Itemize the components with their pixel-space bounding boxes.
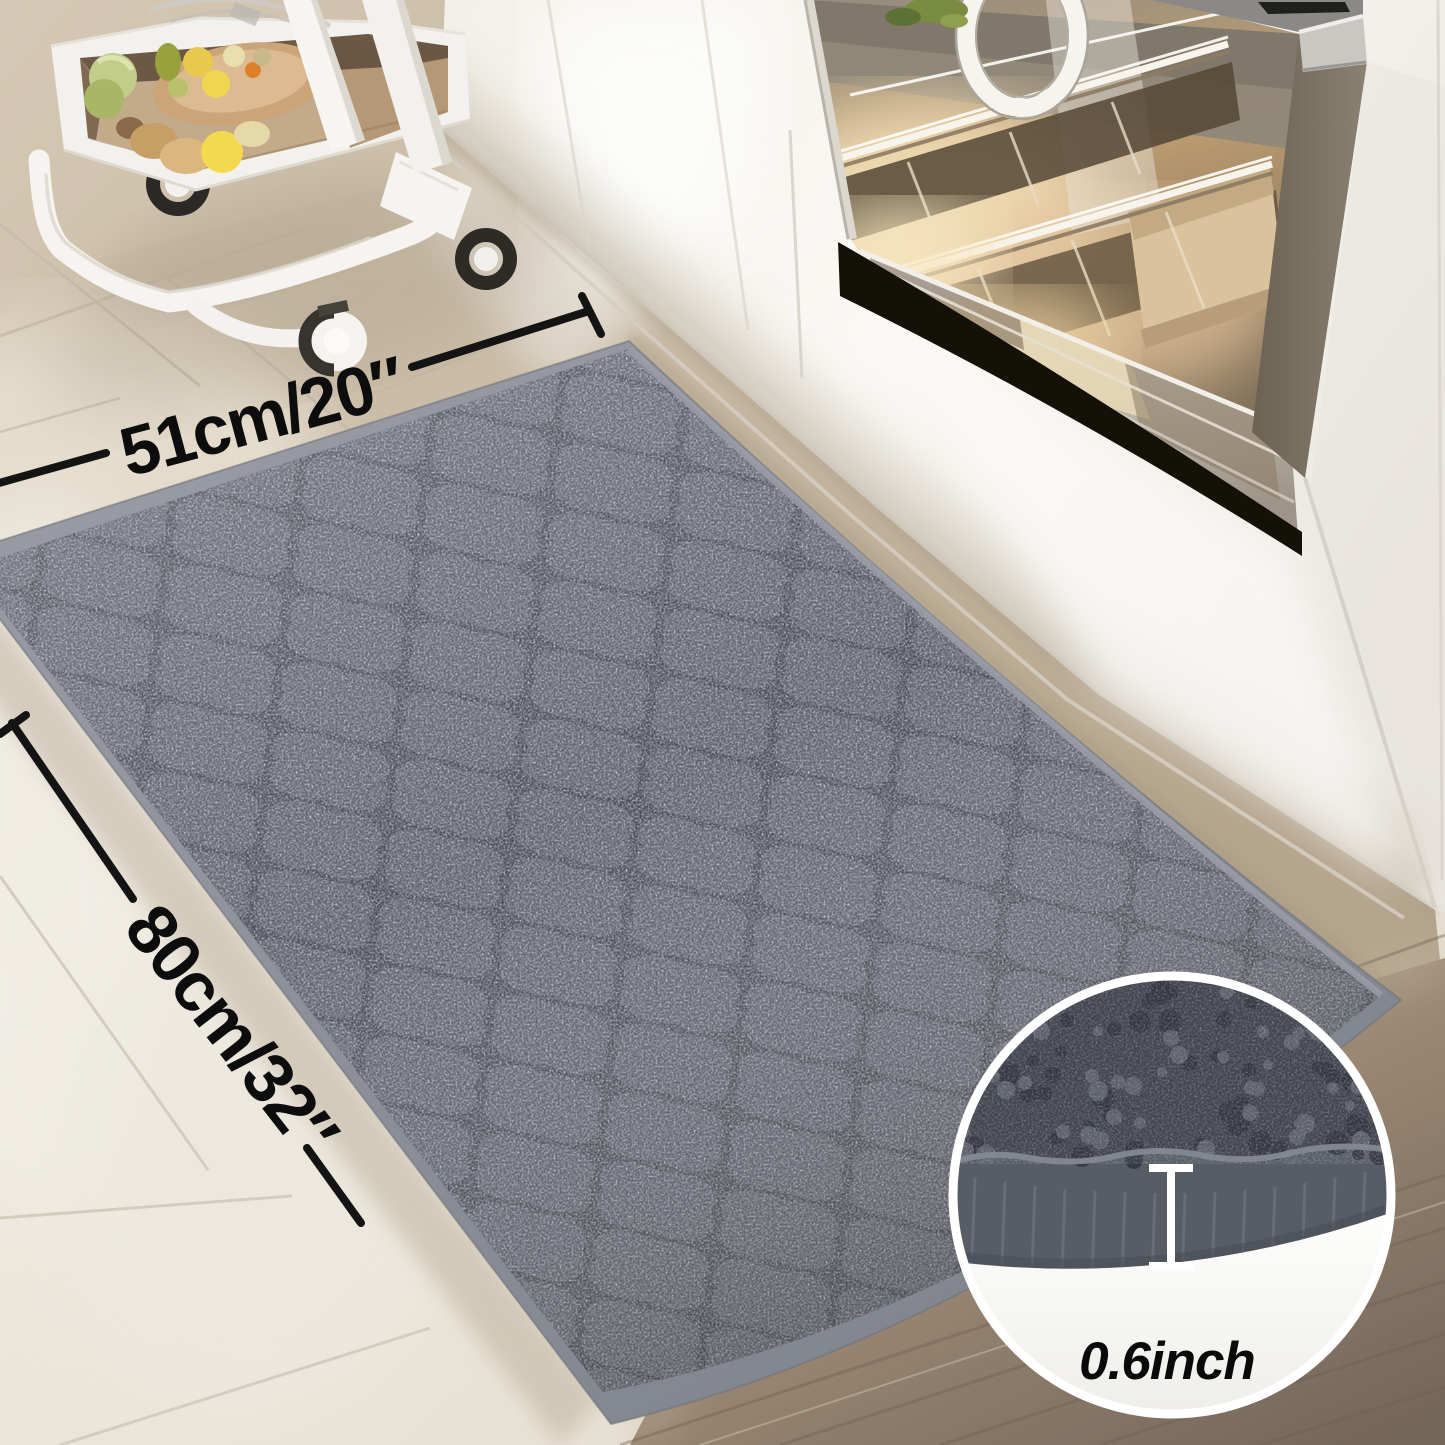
svg-text:0.6inch: 0.6inch bbox=[1079, 1332, 1255, 1391]
